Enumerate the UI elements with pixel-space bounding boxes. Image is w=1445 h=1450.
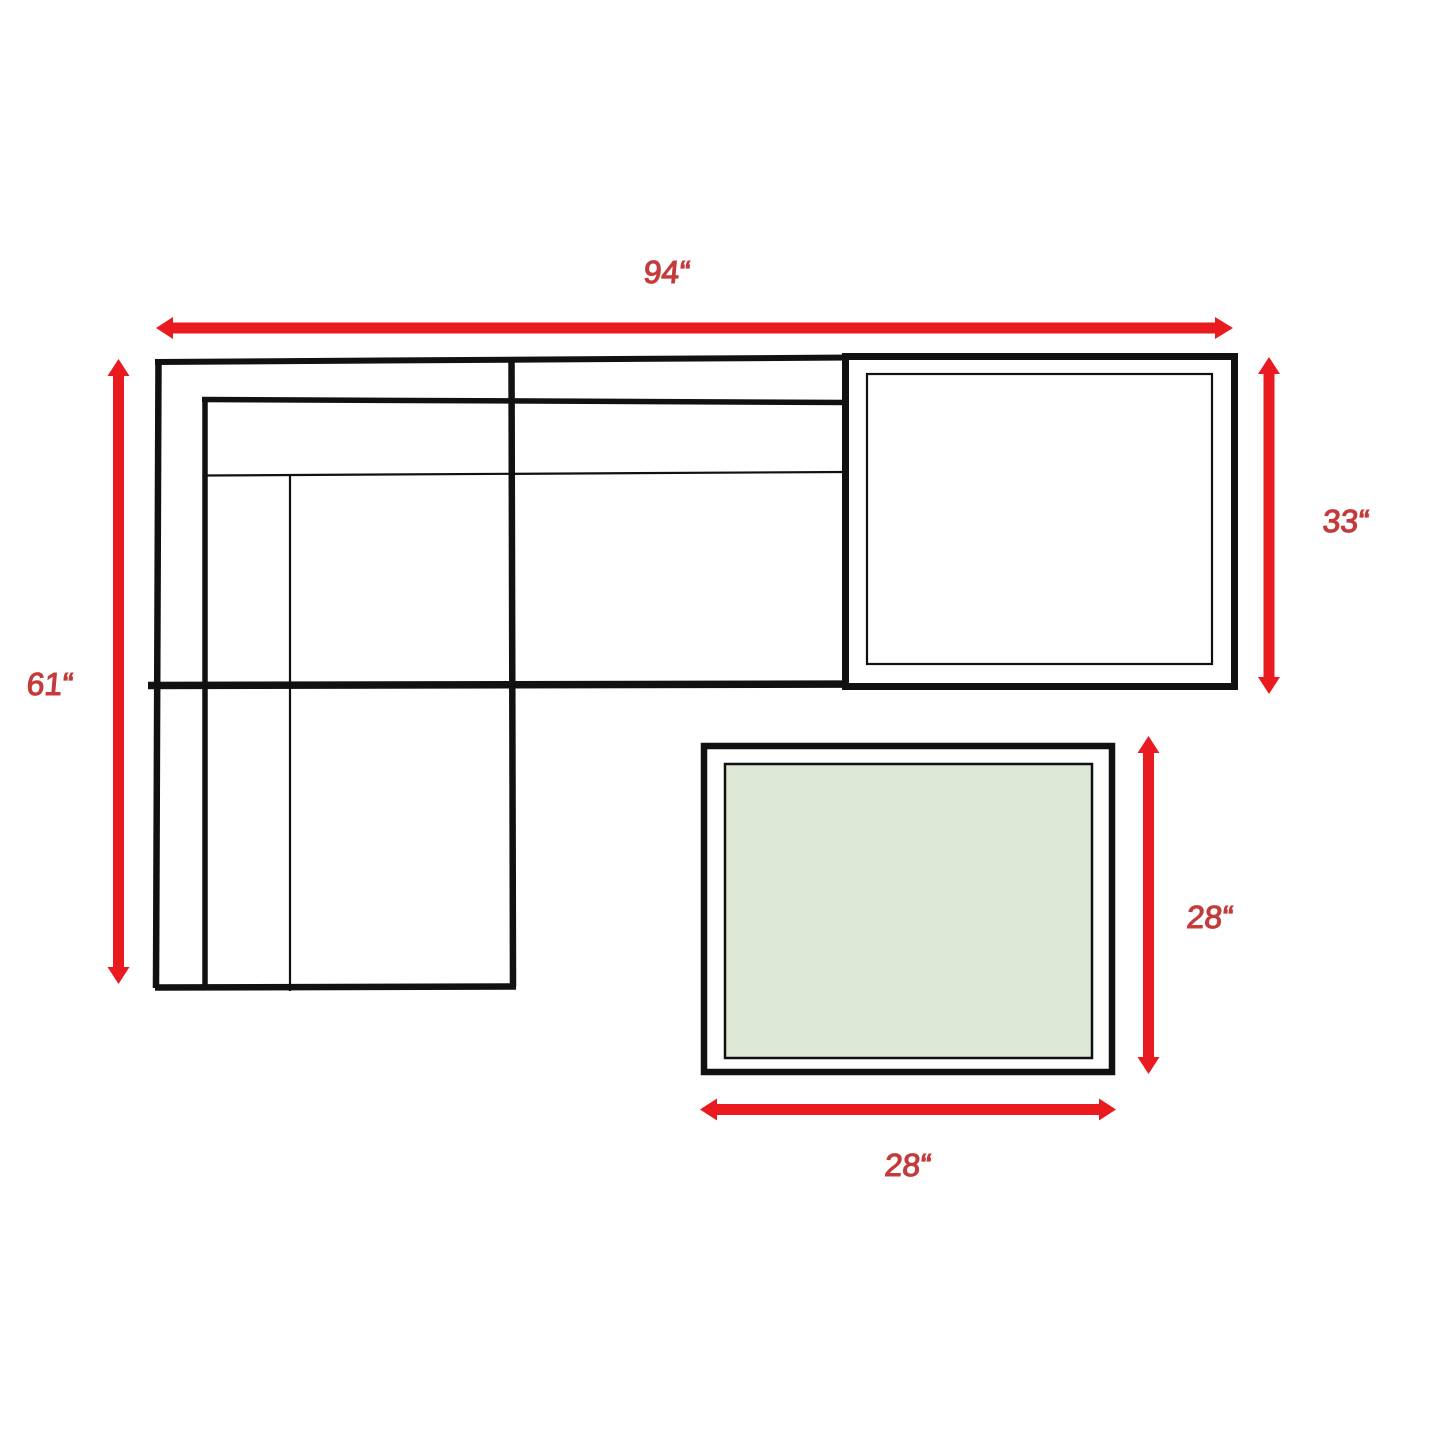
svg-text:28“: 28“ [1185, 899, 1234, 935]
svg-text:33“: 33“ [1321, 503, 1370, 539]
svg-text:61“: 61“ [25, 666, 74, 702]
svg-text:28“: 28“ [883, 1147, 932, 1183]
svg-text:94“: 94“ [642, 254, 691, 290]
